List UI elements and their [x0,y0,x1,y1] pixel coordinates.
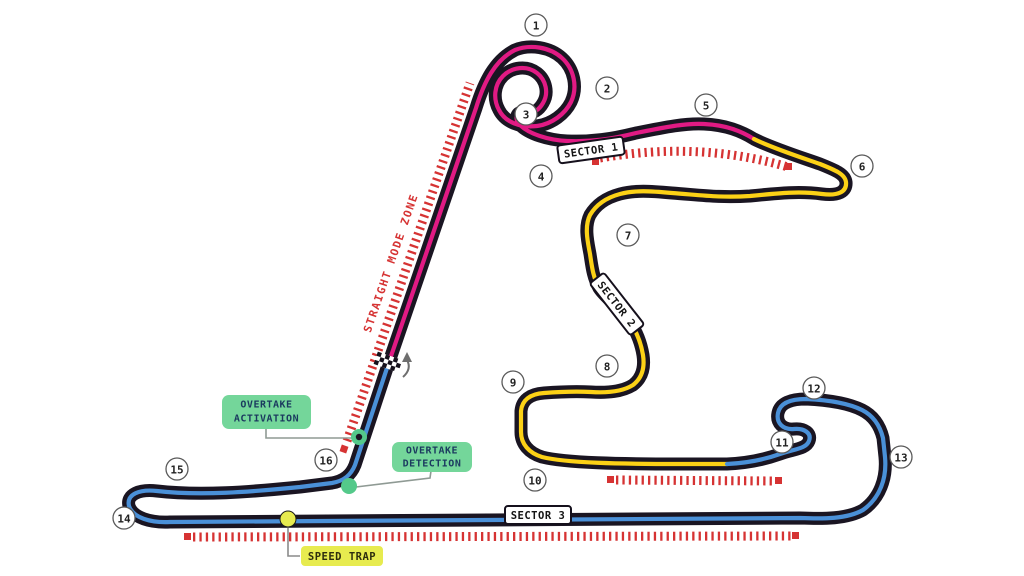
sector-1-line [389,47,754,362]
svg-text:4: 4 [538,171,545,184]
label-line2: ACTIVATION [234,414,299,425]
drs-end-square [792,532,799,539]
drs-dashes [347,83,470,441]
drs-zone-main-straight [340,83,470,453]
speed-trap-marker [280,511,296,527]
turn-marker-1: 1 [525,14,547,36]
overtake-detection-label: OVERTAKE DETECTION [392,442,472,472]
overtake-activation-label: OVERTAKE ACTIVATION [222,395,311,429]
turn-marker-15: 15 [166,458,188,480]
turn-marker-7: 7 [617,224,639,246]
turn-marker-6: 6 [851,155,873,177]
sector-2-plate: SECTOR 2 [590,272,645,335]
label-line1: OVERTAKE [406,446,458,457]
drs-zone-back-straight [184,532,799,540]
direction-arrow [402,352,412,377]
sector-3-plate: SECTOR 3 [505,506,571,524]
turn-marker-13: 13 [890,446,912,468]
svg-text:13: 13 [894,452,907,465]
overtake-detection-marker [341,478,357,494]
svg-text:14: 14 [117,513,131,526]
svg-text:16: 16 [319,455,333,468]
turn-marker-2: 2 [596,77,618,99]
svg-text:9: 9 [510,377,517,390]
track-map: STRAIGHT MODE ZONE SECTOR 1 SECTOR 2 SEC… [0,0,1024,576]
drs-end-square [785,163,792,170]
label-line1: OVERTAKE [240,400,292,411]
turn-marker-16: 16 [315,449,337,471]
overtake-activation-connector [266,428,352,438]
turn-marker-12: 12 [803,377,825,399]
svg-text:2: 2 [604,83,611,96]
sector-3-text: SECTOR 3 [511,510,566,522]
speed-trap-label: SPEED TRAP [301,546,383,566]
turn-marker-10: 10 [524,469,546,491]
svg-text:12: 12 [807,383,820,396]
turn-marker-9: 9 [502,371,524,393]
drs-dashes [193,536,791,537]
svg-text:10: 10 [528,475,541,488]
svg-text:8: 8 [604,361,611,374]
drs-dashes [616,480,774,481]
svg-text:6: 6 [859,161,866,174]
drs-start-square [340,445,349,454]
svg-text:15: 15 [170,464,183,477]
drs-end-square [775,477,782,484]
svg-text:7: 7 [625,230,632,243]
drs-zone-turn10 [607,476,782,484]
overtake-detection-connector [356,471,431,487]
drs-start-square [184,533,191,540]
svg-text:3: 3 [523,109,530,122]
speed-trap-connector [288,527,300,556]
turn-marker-3: 3 [515,103,537,125]
turn-marker-5: 5 [695,94,717,116]
turn-marker-11: 11 [771,431,793,453]
overtake-activation-marker [351,429,367,445]
turn-marker-4: 4 [530,165,552,187]
svg-text:1: 1 [533,20,540,33]
drs-start-square [607,476,614,483]
turn-marker-14: 14 [113,507,135,529]
svg-text:5: 5 [703,100,710,113]
svg-text:11: 11 [775,437,789,450]
drs-dashes [600,151,788,167]
turn-marker-8: 8 [596,355,618,377]
label-line2: DETECTION [403,459,462,470]
label-text: SPEED TRAP [308,551,376,563]
